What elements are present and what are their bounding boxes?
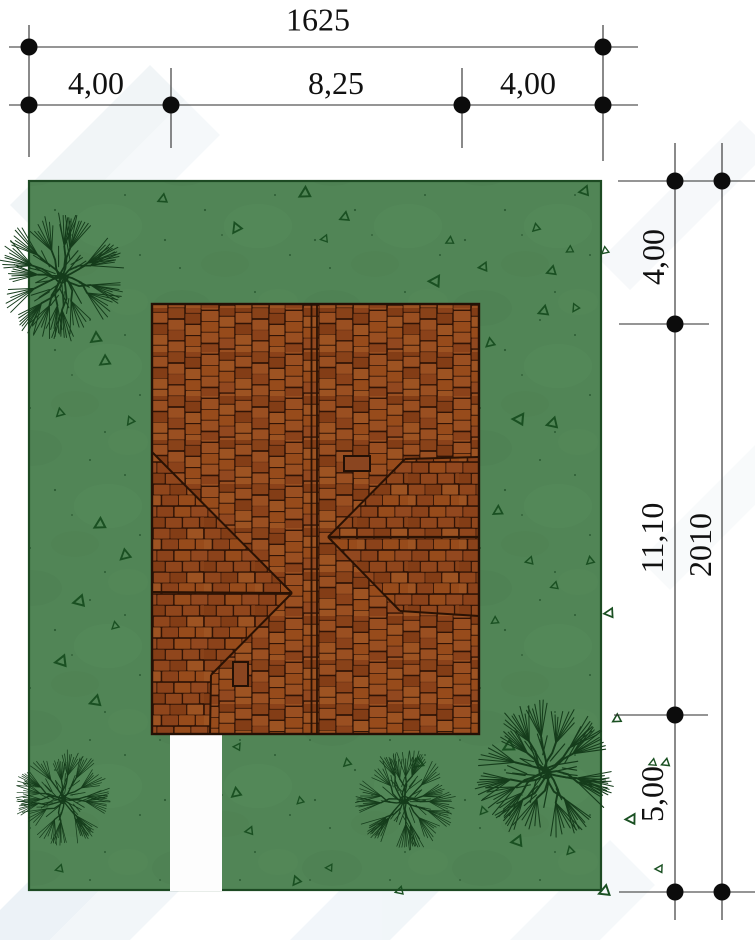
svg-text:11,10: 11,10 [634,503,670,574]
svg-text:2010: 2010 [682,513,718,577]
svg-text:1625: 1625 [286,2,350,38]
svg-text:4,00: 4,00 [635,229,671,285]
svg-text:8,25: 8,25 [308,65,364,101]
svg-text:4,00: 4,00 [68,65,124,101]
svg-text:5,00: 5,00 [634,766,670,822]
svg-text:4,00: 4,00 [500,65,556,101]
